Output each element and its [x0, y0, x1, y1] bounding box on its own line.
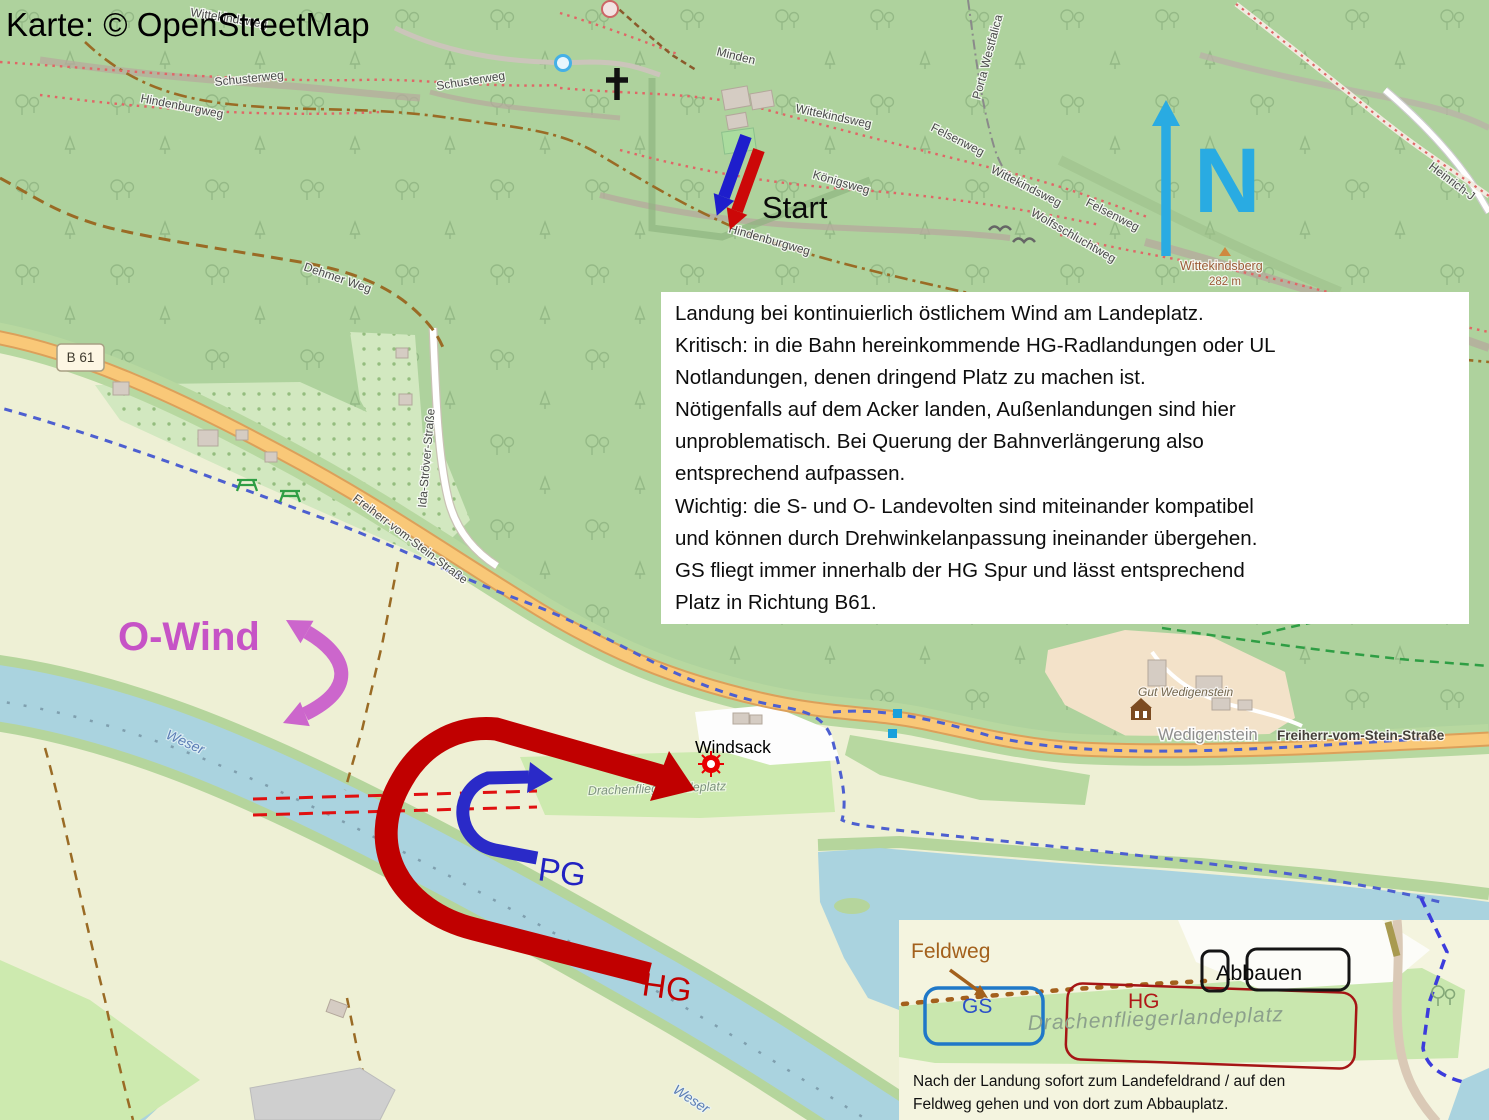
- inset-note-line: Feldweg gehen und von dort zum Abbauplat…: [913, 1096, 1228, 1113]
- instruction-line: Notlandungen, denen dringend Platz zu ma…: [675, 362, 1469, 394]
- east-wind-label: O-Wind: [118, 615, 260, 659]
- building: [721, 86, 750, 110]
- map-marker-blue: [888, 729, 897, 738]
- building: [265, 452, 277, 462]
- start-label: Start: [762, 190, 828, 225]
- instruction-line: Wichtig: die S- und O- Landevolten sind …: [675, 491, 1469, 523]
- instruction-line: entsprechend aufpassen.: [675, 458, 1469, 490]
- building: [1238, 700, 1252, 710]
- building: [1148, 660, 1166, 686]
- building: [399, 394, 412, 405]
- building: [750, 715, 762, 724]
- gs-zone-label: GS: [962, 995, 992, 1018]
- place-label: Gut Wedigenstein: [1138, 685, 1233, 699]
- street-label: Freiherr-vom-Stein-Straße: [1277, 728, 1445, 743]
- instruction-line: Landung bei kontinuierlich östlichem Win…: [675, 298, 1469, 330]
- north-label: N: [1194, 130, 1260, 232]
- landing-briefing-map: Wittekindsweg Wittekindsweg Wittekindswe…: [0, 0, 1489, 1120]
- building: [396, 348, 408, 358]
- landing-instructions-box: Landung bei kontinuierlich östlichem Win…: [661, 292, 1469, 624]
- elevation-label: 282 m: [1209, 276, 1241, 288]
- inset-map: Feldweg GS HG Abbauen Drachenfliegerland…: [899, 898, 1489, 1120]
- inset-note-line: Nach der Landung sofort zum Landefeldran…: [913, 1073, 1285, 1090]
- peak-label: Wittekindsberg: [1180, 259, 1263, 273]
- building: [726, 112, 748, 129]
- map-marker-blue: [893, 709, 902, 718]
- instruction-line: und können durch Drehwinkelanpassung ine…: [675, 523, 1469, 555]
- pg-label: PG: [536, 850, 588, 893]
- building: [236, 430, 248, 440]
- map-attribution: Karte: © OpenStreetMap: [6, 6, 370, 44]
- building: [750, 90, 774, 110]
- instruction-line: Kritisch: in die Bahn hereinkommende HG-…: [675, 330, 1469, 362]
- hg-label: HG: [640, 965, 694, 1009]
- building: [113, 382, 129, 395]
- svg-text:B 61: B 61: [67, 350, 95, 365]
- tower-icon: [602, 1, 618, 17]
- place-label: Wedigenstein: [1158, 726, 1258, 744]
- building: [1212, 698, 1230, 710]
- instruction-line: unproblematisch. Bei Querung der Bahnver…: [675, 426, 1469, 458]
- feldweg-label: Feldweg: [911, 940, 990, 963]
- instruction-line: GS fliegt immer innerhalb der HG Spur un…: [675, 555, 1469, 587]
- instruction-line: Platz in Richtung B61.: [675, 587, 1469, 619]
- viewpoint-icon: [556, 56, 571, 71]
- windsock-label: Windsack: [695, 737, 771, 757]
- abbauen-label: Abbauen: [1216, 961, 1302, 985]
- instruction-line: Nötigenfalls auf dem Acker landen, Außen…: [675, 394, 1469, 426]
- building: [198, 430, 218, 446]
- building: [733, 713, 749, 724]
- river-island: [834, 898, 870, 914]
- road-shield-b61: B 61: [57, 344, 104, 371]
